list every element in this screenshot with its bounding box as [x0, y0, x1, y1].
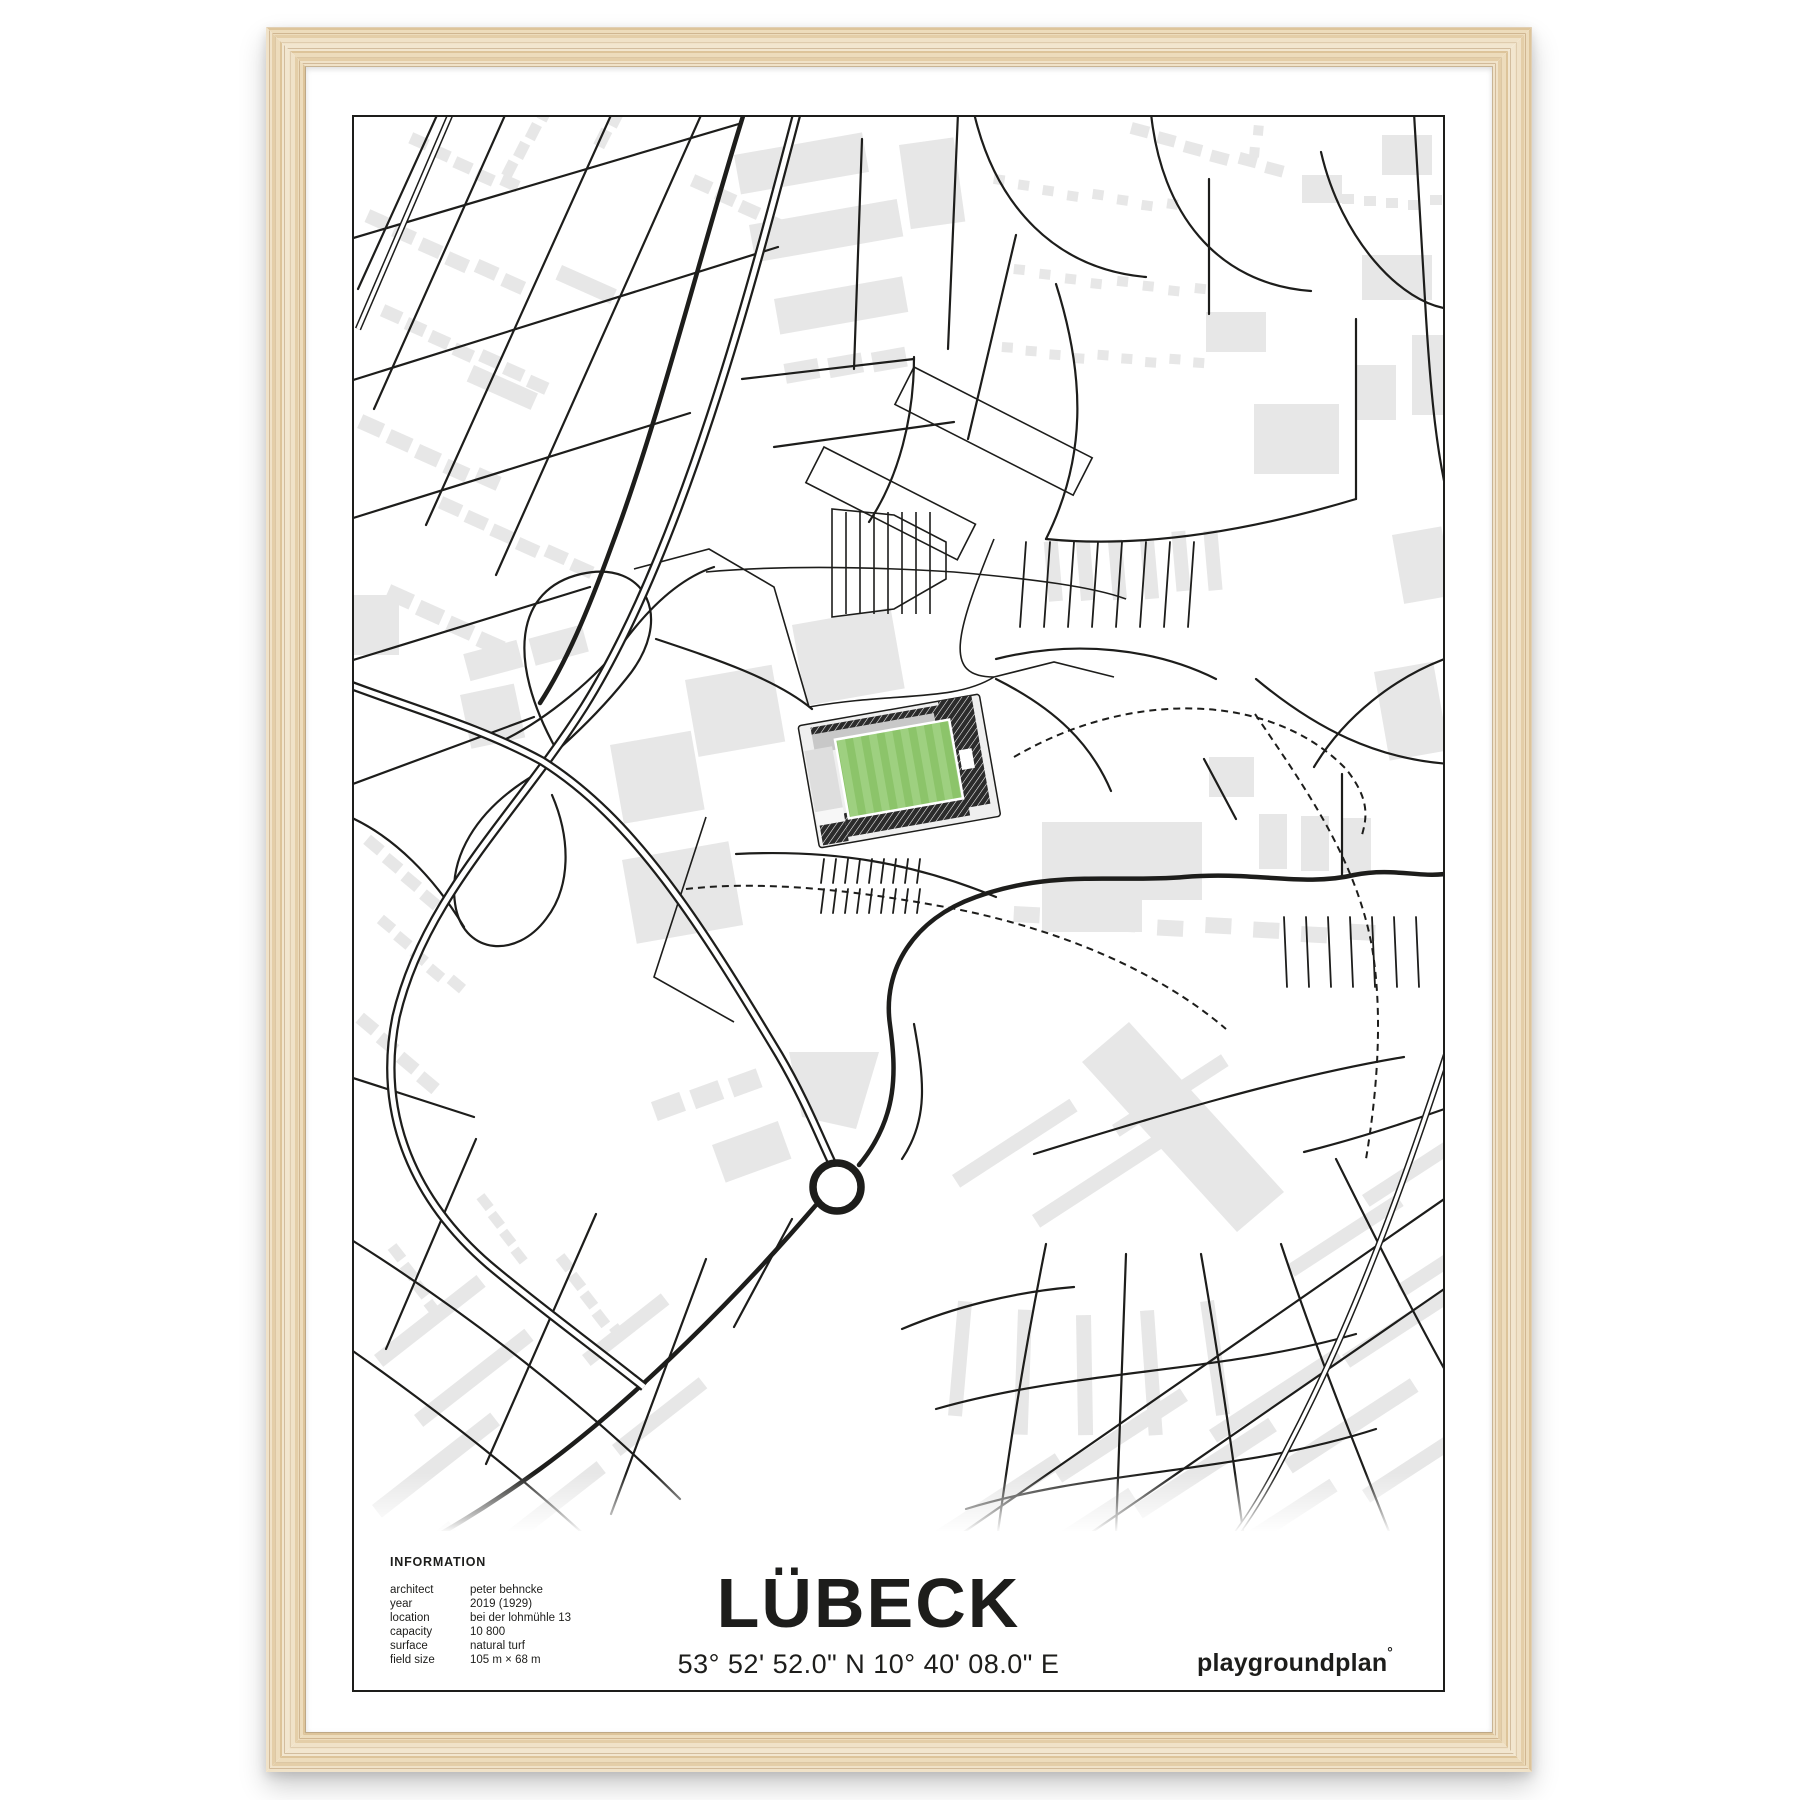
- poster-title: LÜBECK: [354, 1567, 1383, 1639]
- map-area: INFORMATION architectpeter behncke year2…: [352, 115, 1445, 1692]
- poster: INFORMATION architectpeter behncke year2…: [306, 67, 1492, 1732]
- roundabout-icon: [813, 1163, 861, 1211]
- map-svg: [354, 117, 1443, 1690]
- frame-right: [1492, 27, 1532, 1772]
- frame-top: [266, 27, 1532, 67]
- frame-left: [266, 27, 306, 1772]
- wooden-frame: INFORMATION architectpeter behncke year2…: [266, 27, 1532, 1772]
- brand-registered-mark: °: [1387, 1645, 1393, 1660]
- brand-logo: playgroundplan°: [1197, 1645, 1393, 1678]
- product-photo: INFORMATION architectpeter behncke year2…: [0, 0, 1800, 1800]
- frame-bottom: [266, 1732, 1532, 1772]
